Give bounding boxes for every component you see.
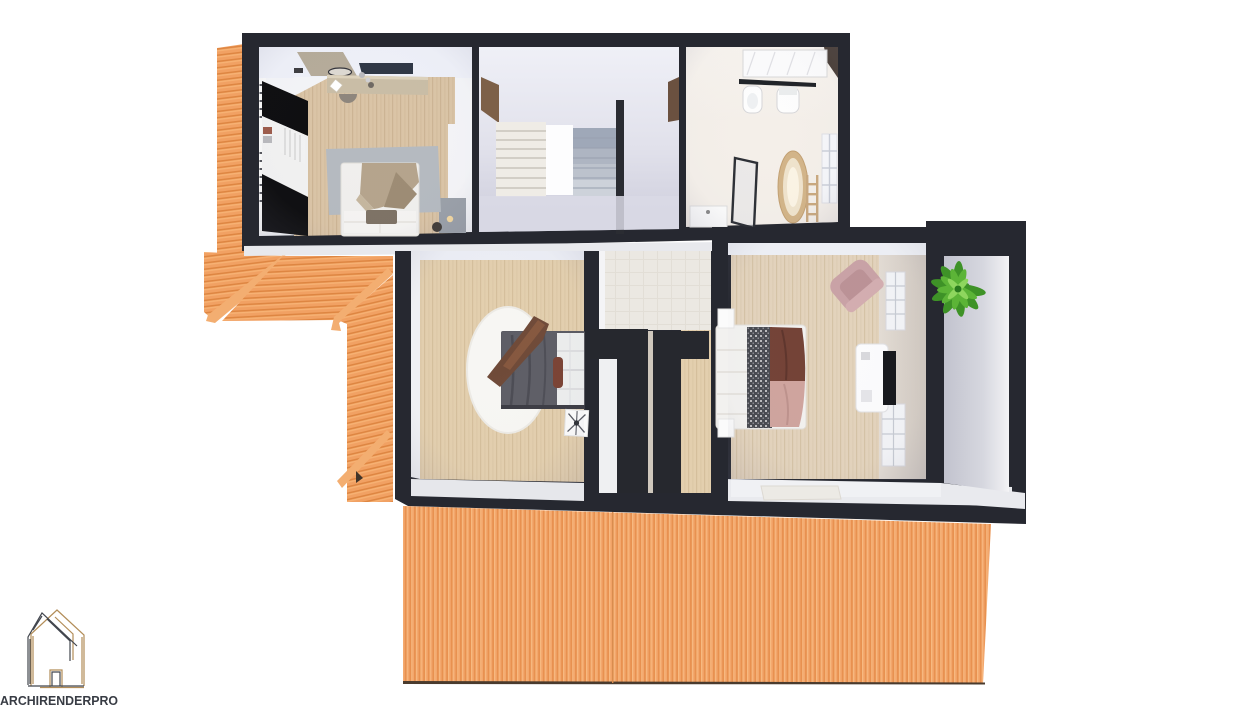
svg-text:ARCHIRENDERPRO: ARCHIRENDERPRO xyxy=(0,693,118,708)
